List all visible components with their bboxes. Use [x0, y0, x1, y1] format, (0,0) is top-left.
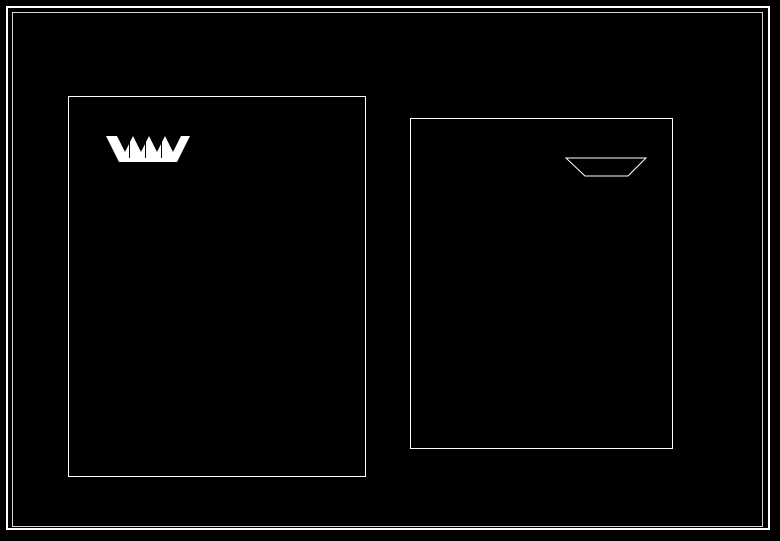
drawing-column-style-16: [0, 0, 780, 541]
acanthus-capital-graphic: [105, 136, 191, 163]
flared-capital-graphic: [565, 158, 647, 177]
